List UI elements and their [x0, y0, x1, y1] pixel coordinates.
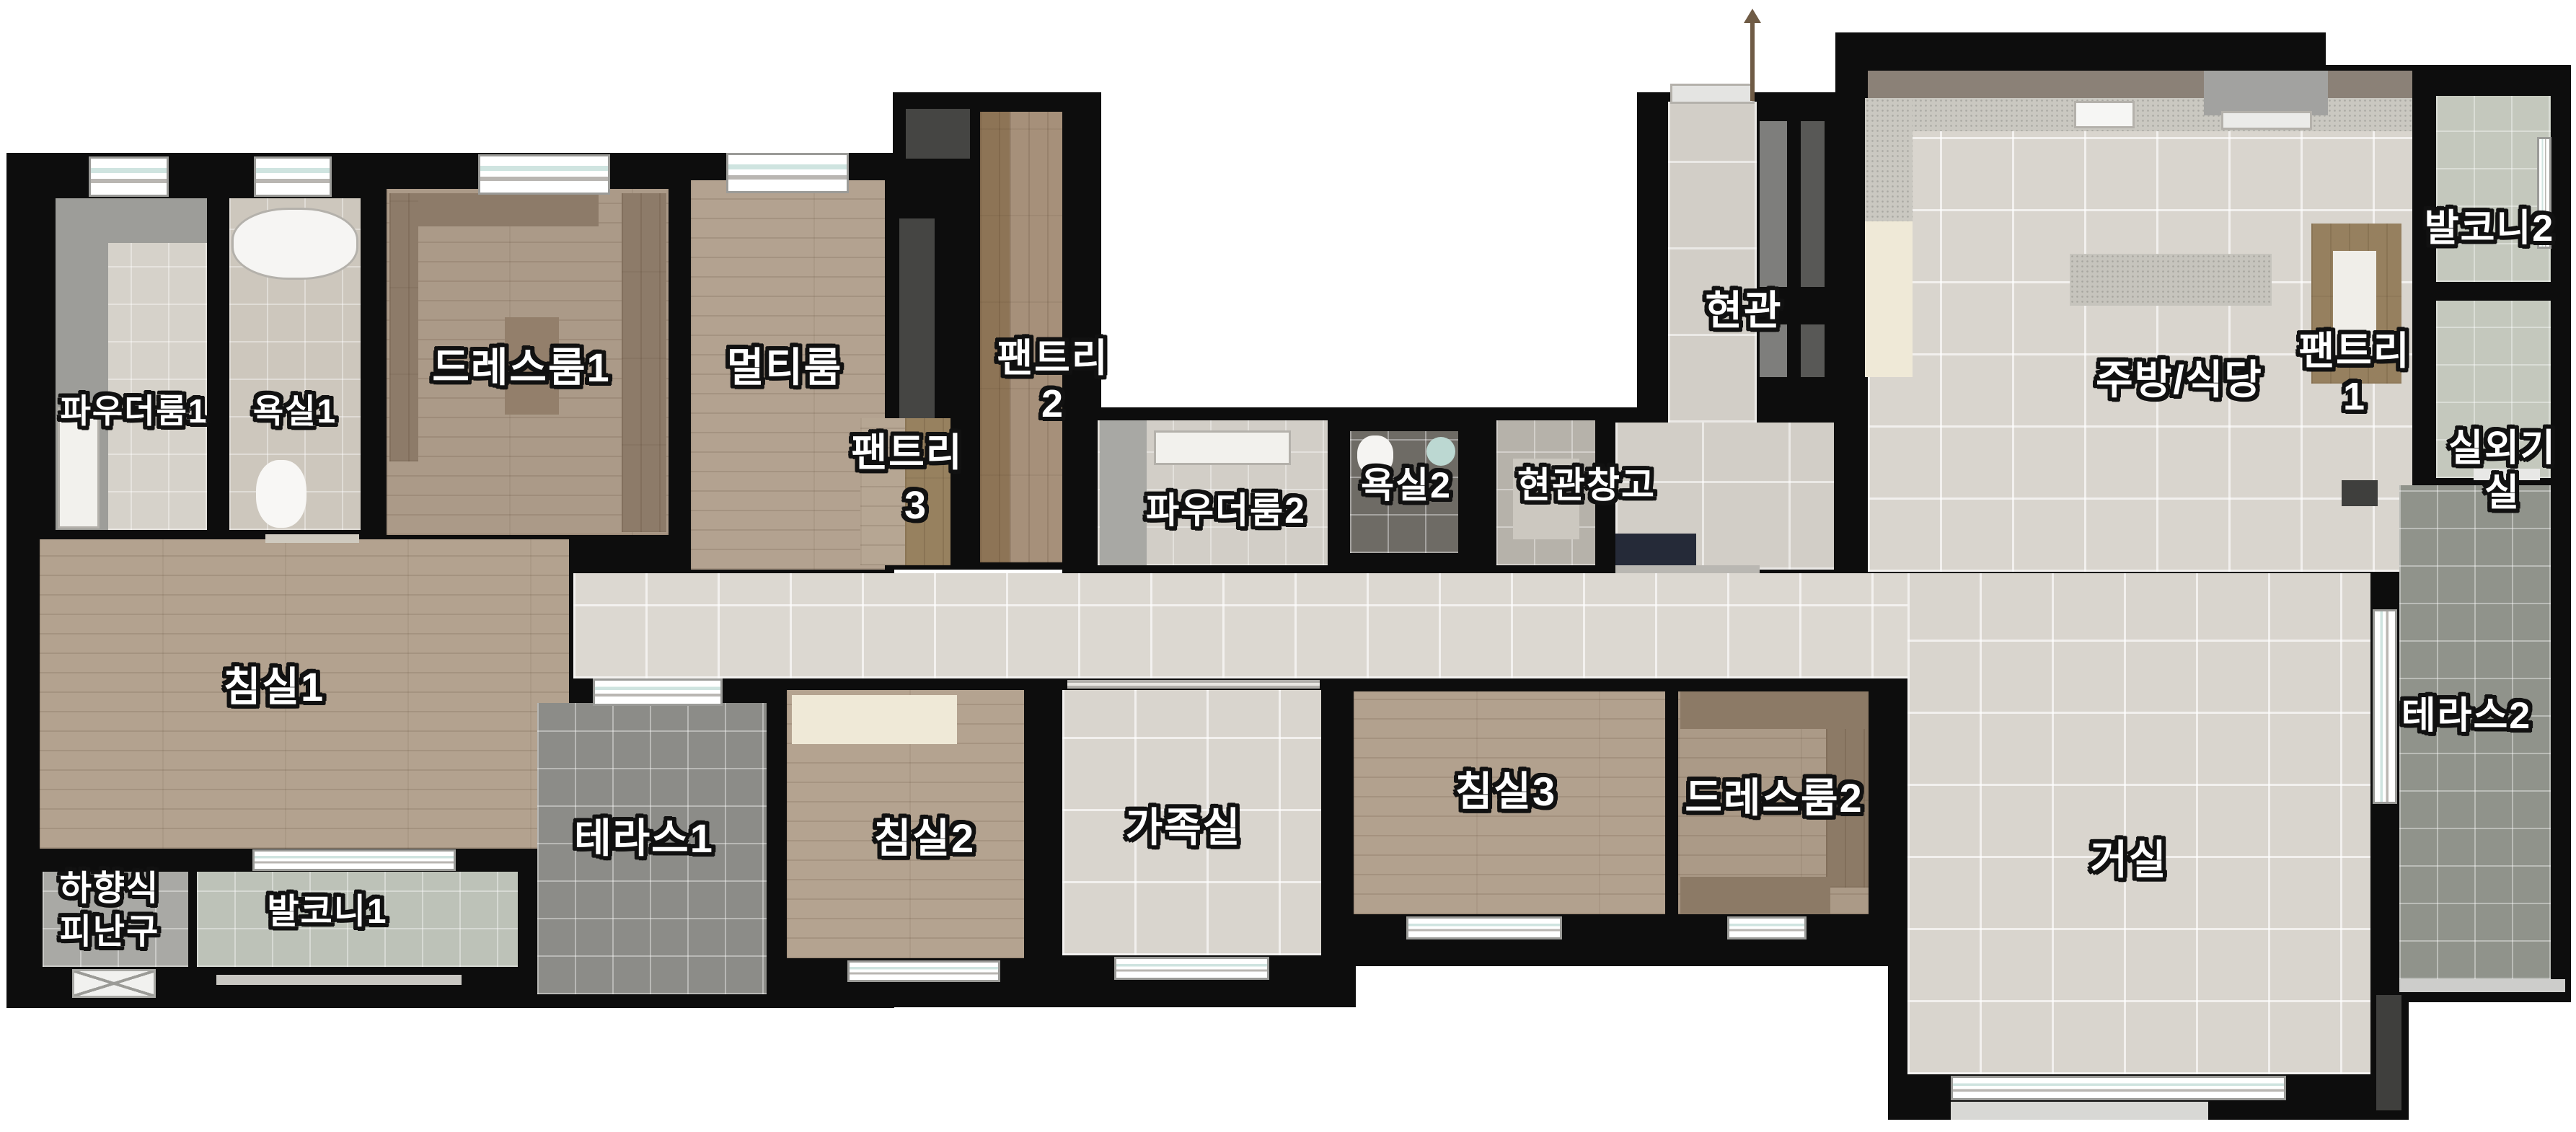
- entry-column-floor: [1668, 102, 1757, 423]
- label-pantry-2-line1: 팬트리: [997, 339, 1108, 378]
- entry-door: [1670, 84, 1755, 104]
- label-bath-1: 욕실1: [253, 394, 337, 428]
- entry-arrow-line: [1750, 20, 1755, 101]
- kitchen-cooktop: [2221, 111, 2312, 130]
- floor-plan: 파우더룸1욕실1드레스룸1멀티룸팬트리2팬트리3파우더룸2욕실2현관창고현관주방…: [0, 0, 2576, 1132]
- window-multi-top: [726, 153, 849, 193]
- bed2-headboard: [792, 695, 957, 744]
- balcony1-rail: [216, 975, 462, 985]
- balcony2-floor: [2436, 96, 2551, 282]
- dining-table: [2070, 254, 2272, 306]
- label-escape-hatch-line1: 하향식: [60, 872, 159, 906]
- entry-arrow-head-icon: [1744, 9, 1761, 23]
- label-powder-room-1: 파우더룸1: [61, 394, 208, 428]
- label-outdoor-unit-line2: 실: [2484, 474, 2520, 512]
- kitchen-island-ivory: [1865, 221, 1913, 377]
- bed1-door-sill: [265, 534, 359, 543]
- label-balcony-1: 발코니1: [267, 895, 387, 929]
- living-wall-closet: [2376, 995, 2401, 1110]
- window-dress1-top: [478, 154, 610, 195]
- terrace2-sill: [2399, 979, 2565, 992]
- dress2-window-bottom: [1727, 916, 1807, 939]
- bed3-window-bottom: [1406, 916, 1562, 939]
- hatch-door: [72, 969, 156, 998]
- powder2-gray: [1100, 420, 1147, 565]
- entry-closet-1: [1760, 121, 1787, 287]
- bed1-window-bottom: [252, 849, 456, 871]
- living-floor: [1907, 573, 2370, 1074]
- entry-closet-4: [1801, 324, 1825, 377]
- label-terrace-1: 테라스1: [574, 818, 714, 859]
- corner-closet: [2342, 480, 2378, 506]
- powder2-counter: [1154, 430, 1291, 465]
- powder1-gray-top: [108, 198, 207, 243]
- pantry2-top-closet: [906, 109, 970, 159]
- label-kitchen-dining: 주방/식당: [2096, 360, 2263, 400]
- family-window-bottom: [1114, 957, 1269, 980]
- label-powder-room-2: 파우더룸2: [1146, 492, 1306, 529]
- kitchen-sink: [2074, 101, 2135, 128]
- entry-closet-2: [1801, 121, 1825, 287]
- window-powder1-top: [89, 156, 169, 197]
- label-pantry-3-line1: 팬트리: [851, 433, 963, 472]
- label-terrace-2: 테라스2: [2401, 697, 2531, 735]
- label-bath-2: 욕실2: [1361, 467, 1452, 503]
- entry-mat: [1615, 534, 1696, 565]
- bath1-tub: [231, 208, 358, 280]
- label-pantry-3-line2: 3: [904, 486, 927, 525]
- bath1-toilet: [256, 460, 306, 528]
- terrace1-window: [593, 678, 723, 706]
- label-balcony-2: 발코니2: [2425, 210, 2554, 247]
- family-track: [1067, 680, 1320, 689]
- label-entrance: 현관: [1705, 291, 1782, 331]
- dress2-closet-bottom: [1680, 877, 1830, 914]
- window-bath1-top: [254, 156, 332, 197]
- kitchen-counter-left: [1865, 98, 1913, 222]
- living-window-bottom: [1951, 1076, 2286, 1100]
- label-multi-room: 멀티룸: [727, 348, 843, 388]
- label-pantry-1-line1: 팬트리: [2298, 332, 2410, 371]
- kitchen-cabinets: [1868, 71, 2412, 98]
- dress1-closet-top: [418, 193, 599, 226]
- label-bedroom-2: 침실2: [874, 818, 975, 859]
- label-entry-storage: 현관창고: [1517, 467, 1656, 503]
- label-escape-hatch-line2: 피난구: [60, 915, 159, 950]
- living-ledge: [1951, 1102, 2208, 1120]
- label-dress-room-1: 드레스룸1: [432, 348, 610, 388]
- kitchen-hood: [2204, 71, 2328, 115]
- living-window-right: [2373, 609, 2397, 804]
- label-dress-room-2: 드레스룸2: [1685, 778, 1863, 818]
- corridor-floor: [573, 573, 1910, 678]
- bath2-sink: [1426, 437, 1455, 466]
- dress1-closet-right: [622, 193, 666, 532]
- label-outdoor-unit-line1: 실외기: [2448, 430, 2557, 467]
- label-family-room: 가족실: [1126, 808, 1242, 848]
- dress2-closet-top: [1680, 691, 1869, 729]
- label-bedroom-3: 침실3: [1455, 771, 1556, 812]
- label-pantry-2-line2: 2: [1041, 384, 1064, 423]
- label-pantry-1-line2: 1: [2343, 377, 2366, 416]
- label-living-room: 거실: [2090, 840, 2167, 880]
- kitchen-counter: [1868, 98, 2412, 131]
- dress1-closet-left: [389, 193, 418, 461]
- bed2-window-bottom: [847, 960, 1000, 982]
- label-bedroom-1: 침실1: [224, 667, 325, 707]
